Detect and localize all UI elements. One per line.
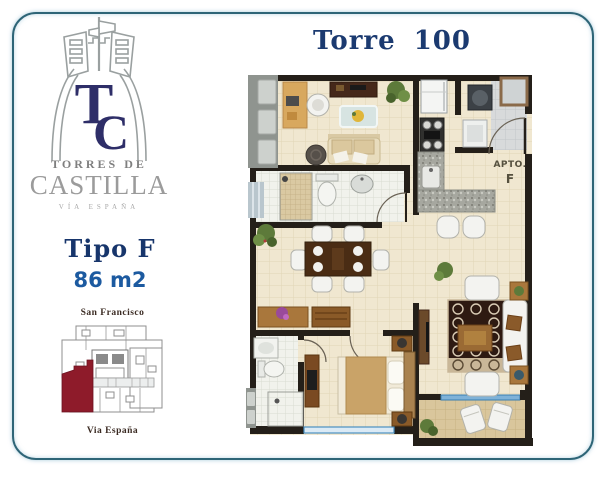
refrigerator	[421, 80, 447, 113]
tv	[350, 85, 366, 90]
breakfast-bar	[418, 190, 495, 212]
flower-leaf	[352, 112, 356, 116]
sideboard-right	[312, 307, 350, 327]
side-table-bowl	[514, 370, 524, 380]
apto-letter: F	[506, 172, 514, 186]
table-flowers	[352, 110, 364, 122]
lamp	[397, 338, 407, 348]
toilet-tank	[316, 174, 338, 181]
bedroom-window	[304, 427, 394, 433]
place-setting	[313, 262, 323, 272]
purple-flowers-detail	[283, 314, 289, 320]
unit-area-label: 86 m2	[10, 268, 210, 292]
desk-computer	[286, 96, 299, 106]
pillow	[388, 388, 404, 411]
place-setting	[313, 246, 323, 256]
bar-stool	[437, 216, 459, 238]
brand-name-line2: CASTILLA	[2, 170, 196, 201]
burner	[423, 121, 431, 129]
dryer-door	[467, 125, 483, 142]
brand-tagline: VÍA ESPAÑA	[6, 203, 192, 211]
lamp	[397, 414, 407, 424]
living-tv	[426, 322, 429, 352]
south-street-label: Via España	[10, 426, 215, 436]
burner	[423, 141, 431, 149]
sofa-pillow	[506, 345, 522, 361]
armchair	[465, 276, 499, 300]
monogram-letter-c: C	[93, 104, 129, 160]
tc-monogram: T C	[75, 71, 129, 160]
dining-chair	[344, 276, 364, 292]
tower-title: Torre 100	[246, 26, 538, 56]
console-decor	[336, 85, 344, 91]
dining-chair	[312, 276, 332, 292]
faucet	[360, 177, 363, 180]
bedroom-tv	[307, 370, 317, 390]
place-setting	[353, 246, 363, 256]
armchair	[465, 372, 499, 396]
shower-drain	[282, 176, 288, 182]
shower2	[268, 392, 303, 426]
shower2-drain	[275, 399, 280, 404]
sofa	[503, 300, 527, 372]
balcony-wall-stub	[520, 390, 526, 400]
side-table-plant	[514, 286, 524, 296]
entry-mat	[501, 78, 527, 105]
place-setting	[353, 262, 363, 272]
stove-panel	[424, 131, 440, 139]
toilet-bowl	[318, 182, 336, 206]
burner	[434, 141, 442, 149]
coffee-table-top	[464, 331, 486, 345]
desk-drawer	[287, 112, 297, 120]
toilet2-bowl	[264, 361, 284, 377]
dining-chair	[312, 226, 332, 242]
bar-stool	[463, 216, 485, 238]
flyer-canvas: T C TORRES DE CASTILLA VÍA ESPAÑA Tipo F…	[0, 0, 607, 480]
dining-chair	[373, 250, 389, 270]
north-street-label: San Francisco	[10, 308, 215, 318]
sink-faucet	[429, 168, 433, 172]
vanity-basin	[258, 342, 274, 354]
bed-blanket	[346, 357, 386, 414]
apto-label: APTO.	[493, 160, 526, 170]
pillow	[388, 361, 404, 384]
building-key-map	[56, 322, 168, 418]
apartment-floorplan: APTO. F	[246, 70, 538, 450]
desk-chair-seat	[312, 99, 324, 111]
sofa-pillow	[506, 315, 522, 331]
burner	[434, 121, 442, 129]
castle-tower-logo: T C	[14, 13, 184, 163]
round-ottoman	[306, 145, 326, 165]
headboard	[404, 352, 415, 418]
dining-chair	[344, 226, 364, 242]
unit-type-label: Tipo F	[10, 234, 210, 263]
table-runner	[332, 248, 344, 270]
washer-drum	[472, 90, 488, 106]
sofa-cushion	[354, 140, 374, 154]
